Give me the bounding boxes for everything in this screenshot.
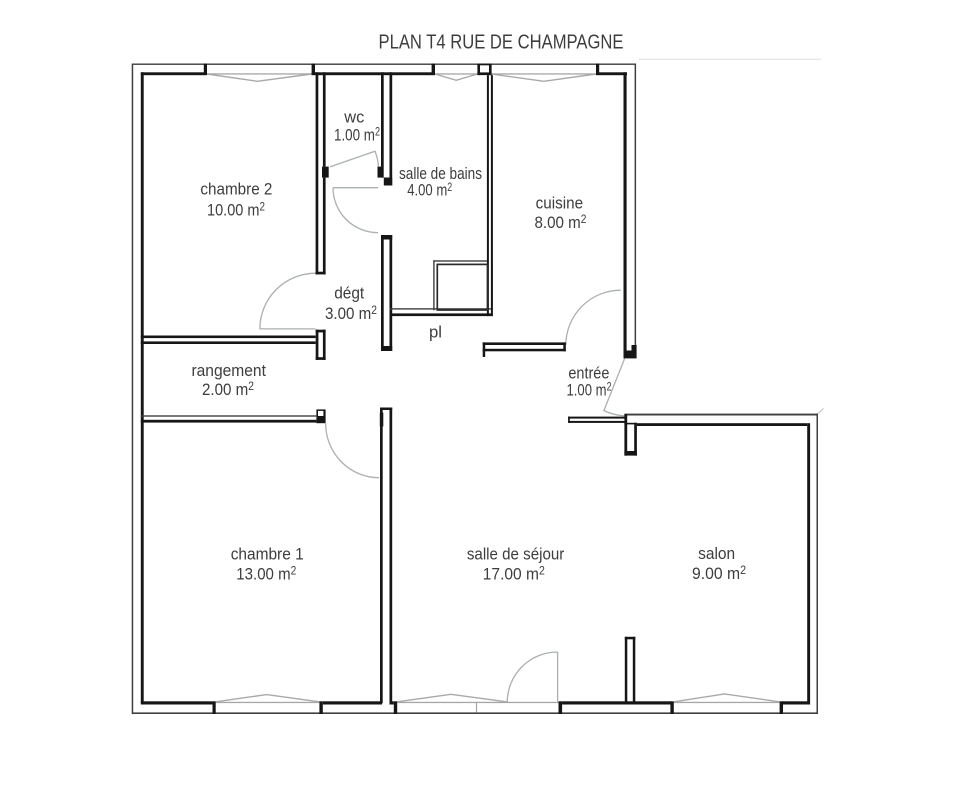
svg-text:PLAN T4 RUE DE CHAMPAGNE: PLAN T4 RUE DE CHAMPAGNE (379, 31, 624, 54)
svg-text:chambre 1: chambre 1 (231, 545, 304, 564)
svg-text:2.00 m2: 2.00 m2 (202, 380, 254, 399)
svg-text:dégt: dégt (334, 284, 364, 303)
svg-text:3.00 m2: 3.00 m2 (325, 304, 377, 323)
svg-text:17.00 m2: 17.00 m2 (483, 565, 545, 584)
svg-text:1.00 m2: 1.00 m2 (567, 381, 612, 400)
svg-text:10.00 m2: 10.00 m2 (207, 201, 265, 220)
svg-text:wc: wc (343, 108, 364, 127)
svg-text:4.00 m2: 4.00 m2 (407, 181, 452, 200)
svg-text:cuisine: cuisine (536, 193, 584, 212)
svg-text:salon: salon (698, 544, 735, 563)
svg-text:salle de séjour: salle de séjour (467, 545, 565, 564)
svg-text:rangement: rangement (191, 361, 266, 380)
svg-text:1.00 m2: 1.00 m2 (334, 125, 380, 144)
svg-text:pl: pl (429, 323, 442, 342)
svg-text:chambre 2: chambre 2 (200, 180, 272, 199)
svg-text:9.00 m2: 9.00 m2 (692, 564, 746, 583)
svg-text:8.00 m2: 8.00 m2 (535, 213, 587, 232)
svg-text:13.00 m2: 13.00 m2 (236, 565, 296, 584)
